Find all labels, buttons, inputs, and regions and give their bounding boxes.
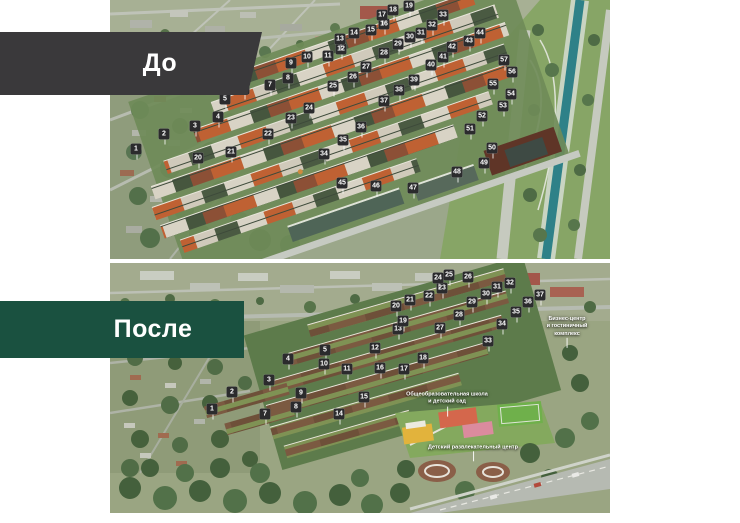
building-marker-56: 56 xyxy=(507,67,518,78)
building-marker-53: 53 xyxy=(498,101,509,112)
building-marker-34: 34 xyxy=(319,149,330,160)
building-marker-4: 4 xyxy=(283,354,294,365)
after-banner-label: После xyxy=(114,315,193,344)
building-marker-43: 43 xyxy=(464,36,475,47)
building-marker-26: 26 xyxy=(348,72,359,83)
building-marker-9: 9 xyxy=(286,58,297,69)
building-marker-12: 12 xyxy=(336,44,347,55)
building-marker-33: 33 xyxy=(483,336,494,347)
building-marker-7: 7 xyxy=(265,80,276,91)
building-marker-18: 18 xyxy=(388,5,399,16)
building-marker-26: 26 xyxy=(463,272,474,283)
building-marker-8: 8 xyxy=(291,402,302,413)
building-marker-49: 49 xyxy=(479,158,490,169)
building-marker-32: 32 xyxy=(427,20,438,31)
building-marker-46: 46 xyxy=(371,181,382,192)
building-marker-47: 47 xyxy=(408,183,419,194)
before-banner-label: До xyxy=(143,49,177,78)
building-marker-16: 16 xyxy=(375,363,386,374)
building-marker-28: 28 xyxy=(379,48,390,59)
building-marker-20: 20 xyxy=(193,153,204,164)
building-marker-1: 1 xyxy=(207,404,218,415)
building-marker-33: 33 xyxy=(438,10,449,21)
building-marker-45: 45 xyxy=(337,178,348,189)
building-marker-36: 36 xyxy=(356,122,367,133)
building-marker-32: 32 xyxy=(505,278,516,289)
map-annotation: Бизнес-центр и гостиничный комплекс xyxy=(547,316,588,338)
building-marker-34: 34 xyxy=(497,319,508,330)
building-marker-11: 11 xyxy=(323,51,334,62)
building-marker-14: 14 xyxy=(334,409,345,420)
building-marker-21: 21 xyxy=(405,295,416,306)
building-marker-22: 22 xyxy=(424,291,435,302)
building-marker-37: 37 xyxy=(379,96,390,107)
map-annotation: Общеобразовательная школа и детский сад xyxy=(406,392,488,407)
building-marker-5: 5 xyxy=(220,94,231,105)
building-marker-19: 19 xyxy=(404,1,415,12)
building-marker-3: 3 xyxy=(190,121,201,132)
building-marker-19: 19 xyxy=(398,316,409,327)
building-marker-44: 44 xyxy=(475,28,486,39)
building-marker-18: 18 xyxy=(418,353,429,364)
building-marker-35: 35 xyxy=(338,135,349,146)
building-marker-23: 23 xyxy=(286,113,297,124)
building-marker-31: 31 xyxy=(492,282,503,293)
building-marker-24: 24 xyxy=(433,273,444,284)
building-marker-36: 36 xyxy=(523,297,534,308)
building-marker-30: 30 xyxy=(405,32,416,43)
building-marker-22: 22 xyxy=(263,129,274,140)
building-marker-48: 48 xyxy=(452,167,463,178)
building-marker-7: 7 xyxy=(260,409,271,420)
building-marker-29: 29 xyxy=(467,297,478,308)
building-marker-20: 20 xyxy=(391,301,402,312)
building-marker-9: 9 xyxy=(296,388,307,399)
building-marker-17: 17 xyxy=(399,364,410,375)
building-marker-8: 8 xyxy=(283,73,294,84)
map-annotation: Детский развлекательный центр xyxy=(428,444,518,451)
building-marker-54: 54 xyxy=(506,89,517,100)
building-marker-2: 2 xyxy=(159,129,170,140)
building-marker-4: 4 xyxy=(213,112,224,123)
before-banner: До xyxy=(0,32,262,95)
building-marker-24: 24 xyxy=(304,103,315,114)
building-marker-41: 41 xyxy=(438,52,449,63)
building-marker-31: 31 xyxy=(416,28,427,39)
building-marker-27: 27 xyxy=(361,62,372,73)
building-marker-30: 30 xyxy=(481,289,492,300)
building-marker-25: 25 xyxy=(328,81,339,92)
building-marker-11: 11 xyxy=(342,364,353,375)
building-marker-10: 10 xyxy=(302,52,313,63)
building-marker-57: 57 xyxy=(499,55,510,66)
building-marker-3: 3 xyxy=(264,375,275,386)
building-marker-42: 42 xyxy=(447,42,458,53)
building-marker-28: 28 xyxy=(454,310,465,321)
after-banner: После xyxy=(0,301,244,358)
building-marker-21: 21 xyxy=(226,147,237,158)
building-marker-12: 12 xyxy=(370,343,381,354)
building-marker-35: 35 xyxy=(511,307,522,318)
building-marker-1: 1 xyxy=(131,144,142,155)
building-marker-13: 13 xyxy=(335,34,346,45)
building-marker-15: 15 xyxy=(359,392,370,403)
building-marker-5: 5 xyxy=(320,345,331,356)
building-marker-14: 14 xyxy=(349,28,360,39)
building-marker-10: 10 xyxy=(319,359,330,370)
building-marker-15: 15 xyxy=(366,25,377,36)
building-marker-25: 25 xyxy=(444,270,455,281)
building-marker-17: 17 xyxy=(377,10,388,21)
building-marker-2: 2 xyxy=(227,387,238,398)
building-marker-29: 29 xyxy=(393,39,404,50)
building-marker-40: 40 xyxy=(426,60,437,71)
building-marker-50: 50 xyxy=(487,143,498,154)
building-marker-51: 51 xyxy=(465,124,476,135)
building-marker-55: 55 xyxy=(488,79,499,90)
building-marker-27: 27 xyxy=(435,323,446,334)
building-marker-38: 38 xyxy=(394,85,405,96)
building-marker-37: 37 xyxy=(535,290,546,301)
building-marker-39: 39 xyxy=(409,75,420,86)
building-marker-52: 52 xyxy=(477,111,488,122)
